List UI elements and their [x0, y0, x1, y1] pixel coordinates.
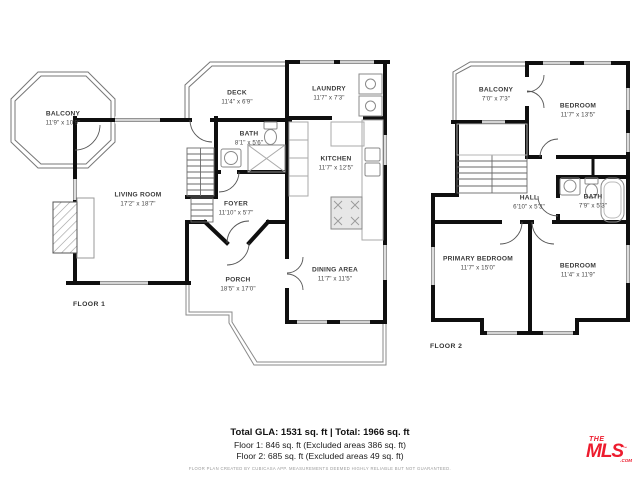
floor-plan-drawing	[0, 0, 640, 480]
sink-shape	[221, 149, 241, 167]
floor2-walls	[433, 63, 628, 333]
floor2-balcony-rail	[453, 62, 527, 122]
area-summary: Total GLA: 1531 sq. ft | Total: 1966 sq.…	[0, 427, 640, 471]
floor1-fireplace	[53, 198, 94, 258]
floor1-caption: FLOOR 1	[73, 301, 105, 308]
floor2-bath-fixtures	[560, 178, 624, 222]
toilet-shape	[264, 122, 277, 145]
disclaimer-text: FLOOR PLAN CREATED BY CUBICASA APP. MEAS…	[0, 466, 640, 471]
shower-shape	[248, 145, 285, 172]
sink-shape	[560, 178, 580, 195]
floor-plan-page: BALCONY11'9" x 10'9" DECK11'4" x 6'9" LA…	[0, 0, 640, 480]
floor1-stairs	[187, 148, 214, 222]
floor2-caption: FLOOR 2	[430, 343, 462, 350]
floor1-kitchen-fixtures	[289, 120, 383, 240]
themls-logo: THE MLS™ .COM	[586, 436, 634, 466]
floor1-laundry-appliances	[359, 74, 382, 116]
floor1-bath-fixtures	[221, 122, 285, 172]
floor1-plan	[11, 59, 389, 366]
floor2-plan	[430, 60, 632, 337]
total-gla-line: Total GLA: 1531 sq. ft | Total: 1966 sq.…	[0, 427, 640, 438]
floor2-area-line: Floor 2: 685 sq. ft (Excluded areas 49 s…	[0, 451, 640, 461]
floor2-stairs	[457, 124, 527, 193]
bathtub-shape	[601, 178, 624, 222]
toilet-shape	[585, 178, 598, 198]
stove-shape	[331, 197, 362, 229]
floor1-windows	[72, 59, 389, 326]
floor2-door-arcs	[500, 75, 558, 244]
floor1-deck-rail	[185, 62, 290, 120]
floor1-area-line: Floor 1: 846 sq. ft (Excluded areas 386 …	[0, 440, 640, 450]
kitchen-sink-shape	[365, 148, 380, 176]
